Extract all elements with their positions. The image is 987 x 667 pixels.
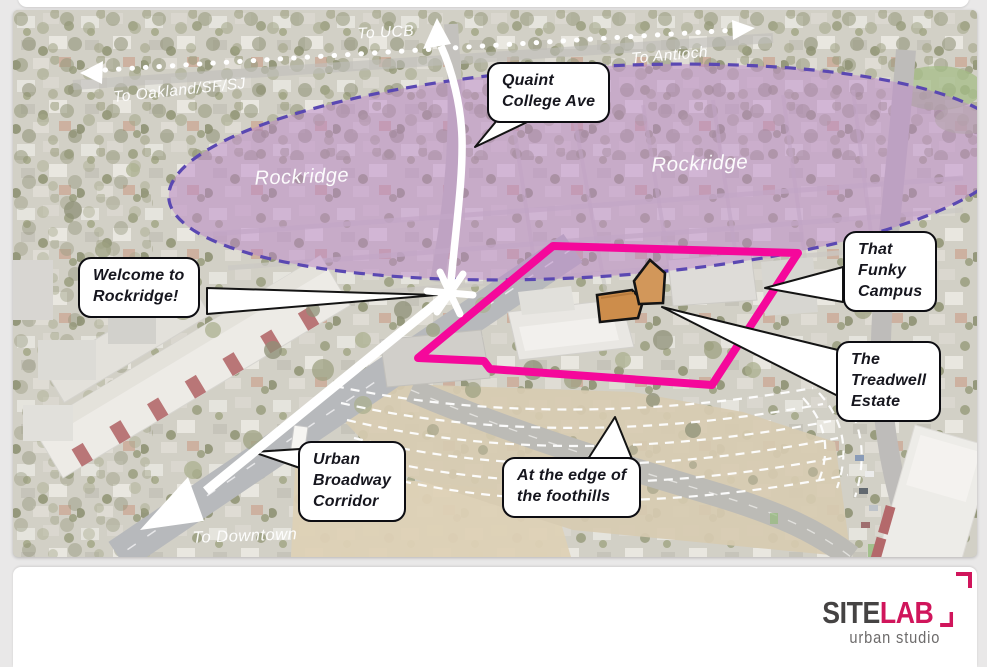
map-slide[interactable]: Rockridge Rockridge To UCB To Oakland/SF… <box>13 10 977 557</box>
previous-slide-edge[interactable] <box>18 0 969 7</box>
callout-the-treadwell-estate: The Treadwell Estate <box>836 341 941 422</box>
to-ucb-label: To UCB <box>357 23 415 43</box>
callout-urban-broadway-corridor: Urban Broadway Corridor <box>298 441 406 522</box>
logo-lab-text: LAB <box>880 597 934 628</box>
callout-welcome-to-rockridge: Welcome to Rockridge! <box>78 257 200 318</box>
rockridge-label-right: Rockridge <box>651 150 749 176</box>
callout-that-funky-campus: That Funky Campus <box>843 231 937 312</box>
sitelab-logo: SITELAB urban studio <box>822 597 953 647</box>
logo-bracket-icon <box>940 612 953 627</box>
rockridge-label-left: Rockridge <box>254 164 349 189</box>
corner-bracket-icon <box>956 572 972 588</box>
logo-site-text: SITE <box>822 597 880 628</box>
to-downtown-label: To Downtown <box>192 525 297 547</box>
logo-subtitle: urban studio <box>822 629 940 647</box>
callout-quaint-college-ave: Quaint College Ave <box>487 62 610 123</box>
callout-at-the-edge-of-the-foothills: At the edge of the foothills <box>502 457 641 518</box>
next-slide[interactable]: SITELAB urban studio <box>13 567 977 667</box>
